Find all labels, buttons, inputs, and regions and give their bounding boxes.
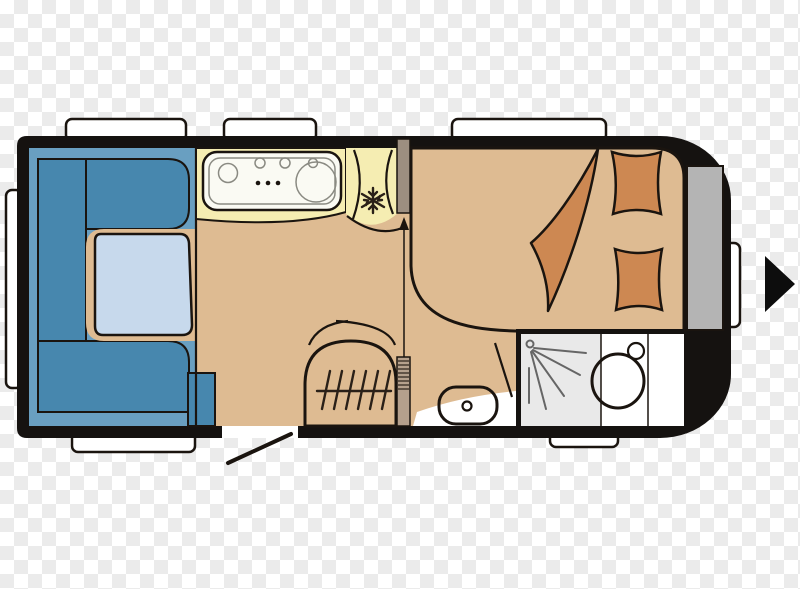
pillow xyxy=(615,249,662,310)
knob-dot-icon xyxy=(266,181,271,186)
caravan-floor-plan xyxy=(0,0,800,589)
bathroom-wall-top xyxy=(516,329,684,334)
bathroom-wall-left xyxy=(516,329,521,426)
hinge-strip xyxy=(397,357,410,426)
dinette-bench-stub xyxy=(188,373,215,426)
partition-wall xyxy=(397,139,410,213)
front-storage-panel xyxy=(687,166,723,330)
dinette-table xyxy=(95,234,192,335)
bathroom xyxy=(516,329,684,426)
direction-arrow-icon xyxy=(765,256,795,312)
dinette-bench-bottom xyxy=(38,341,189,412)
entry-door-swing xyxy=(228,434,291,463)
kitchen xyxy=(196,148,346,222)
knob-dot-icon xyxy=(256,181,261,186)
dinette xyxy=(29,148,215,426)
pillow xyxy=(612,152,661,214)
shower-cubicle xyxy=(521,334,601,426)
knob-dot-icon xyxy=(276,181,281,186)
floor-plan-stage xyxy=(0,0,800,589)
